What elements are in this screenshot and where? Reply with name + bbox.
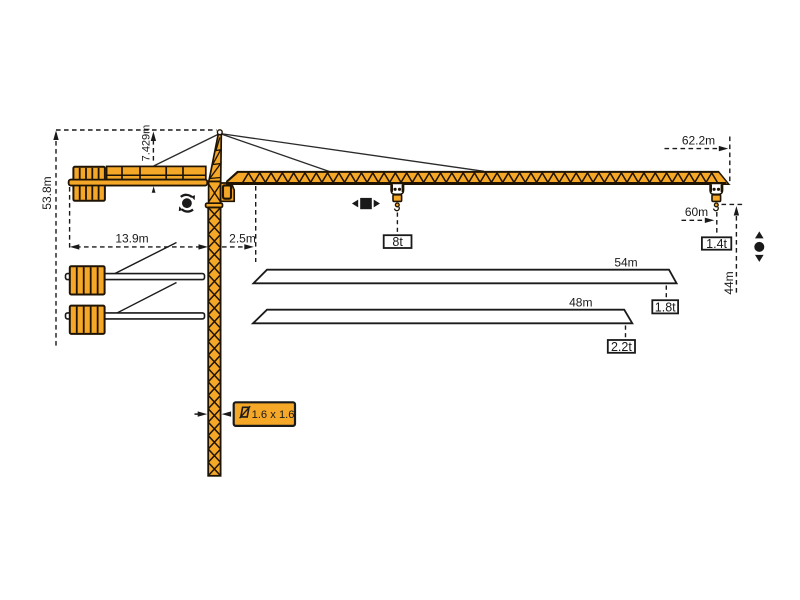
svg-text:1.4t: 1.4t <box>706 237 727 251</box>
svg-text:7.429m: 7.429m <box>141 125 153 162</box>
svg-text:13.9m: 13.9m <box>115 232 148 246</box>
svg-text:8t: 8t <box>392 235 403 249</box>
svg-text:1.8t: 1.8t <box>655 300 676 314</box>
svg-text:54m: 54m <box>614 255 637 269</box>
svg-text:44m: 44m <box>722 271 736 294</box>
svg-text:53.8m: 53.8m <box>40 176 54 209</box>
svg-text:62.2m: 62.2m <box>682 134 715 148</box>
svg-text:2.2t: 2.2t <box>611 340 632 354</box>
svg-text:2.5m: 2.5m <box>229 232 256 246</box>
svg-text:1.6 x 1.6: 1.6 x 1.6 <box>252 409 295 421</box>
svg-text:60m: 60m <box>685 205 708 219</box>
svg-text:48m: 48m <box>569 295 592 309</box>
